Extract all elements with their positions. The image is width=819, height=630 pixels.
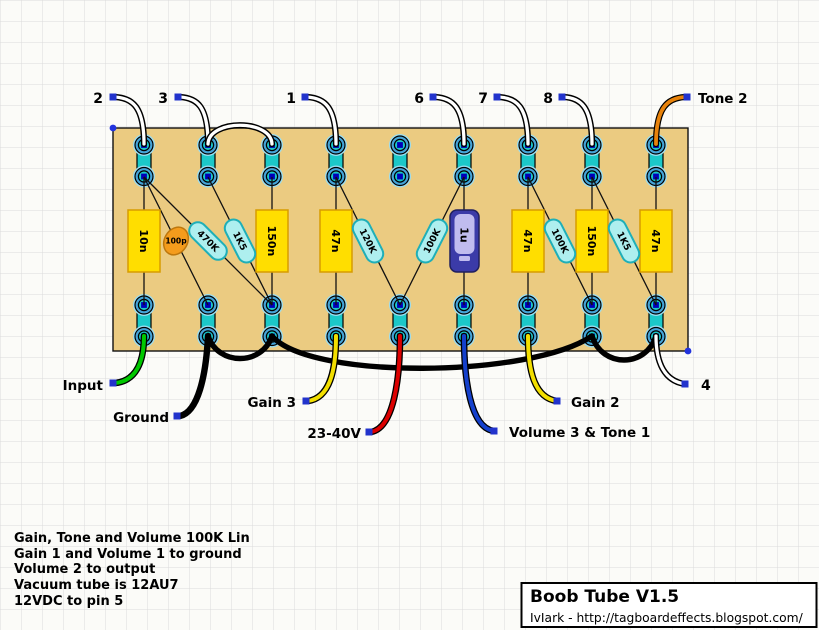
note-line-5: 12VDC to pin 5 <box>14 594 123 609</box>
capacitor-10n-label: 10n <box>137 229 150 252</box>
board-corner-handle-topleft <box>110 125 117 132</box>
note-line-4: Vacuum tube is 12AU7 <box>14 578 179 593</box>
label-pin3: 3 <box>158 91 168 107</box>
capacitor-1u-electrolytic: 1u <box>450 210 479 272</box>
label-pin7: 7 <box>478 91 488 107</box>
marker-pin1 <box>302 94 309 101</box>
capacitor-47n-c-label: 47n <box>649 229 662 252</box>
marker-input <box>110 380 117 387</box>
marker-gain3 <box>303 398 310 405</box>
capacitor-150n-b: 150n <box>576 210 608 272</box>
label-pin4: 4 <box>701 378 711 394</box>
capacitor-47n-a: 47n <box>320 210 352 272</box>
marker-vol3tone1 <box>491 428 498 435</box>
label-tone2: Tone 2 <box>698 91 748 107</box>
marker-pin4 <box>682 381 689 388</box>
marker-pin2 <box>110 94 117 101</box>
marker-tone2 <box>684 94 691 101</box>
note-line-3: Volume 2 to output <box>14 562 155 577</box>
marker-pin3 <box>175 94 182 101</box>
label-pin8: 8 <box>543 91 553 107</box>
label-pin6: 6 <box>414 91 424 107</box>
label-ground: Ground <box>113 410 169 426</box>
layout-credit: IvIark - http://tagboardeffects.blogspot… <box>530 611 804 625</box>
marker-pin7 <box>494 94 501 101</box>
marker-gain2 <box>554 398 561 405</box>
layout-canvas: 10n 150n 47n 47n 150n 47n 1u 10 <box>0 0 819 630</box>
vero-layout-screenshot: 10n 150n 47n 47n 150n 47n 1u 10 <box>0 0 819 630</box>
label-vol3tone1: Volume 3 & Tone 1 <box>509 425 650 441</box>
note-line-2: Gain 1 and Volume 1 to ground <box>14 547 242 562</box>
label-pin1: 1 <box>286 91 296 107</box>
polarity-stripe <box>459 256 470 261</box>
capacitor-150n-b-label: 150n <box>585 226 598 257</box>
marker-pin6 <box>430 94 437 101</box>
capacitor-150n-a-label: 150n <box>265 226 278 257</box>
layout-title: Boob Tube V1.5 <box>530 587 679 607</box>
label-pin2: 2 <box>93 91 103 107</box>
marker-pin8 <box>559 94 566 101</box>
capacitor-1u-label: 1u <box>458 227 471 243</box>
board-corner-handle-bottomright <box>685 348 692 355</box>
capacitor-47n-c: 47n <box>640 210 672 272</box>
label-input: Input <box>63 378 104 394</box>
marker-ground <box>174 413 181 420</box>
marker-supply <box>366 429 373 436</box>
label-gain3: Gain 3 <box>247 395 296 411</box>
capacitor-150n-a: 150n <box>256 210 288 272</box>
capacitor-10n: 10n <box>128 210 160 272</box>
note-line-1: Gain, Tone and Volume 100K Lin <box>14 531 250 546</box>
capacitor-47n-a-label: 47n <box>329 229 342 252</box>
title-block: Boob Tube V1.5 IvIark - http://tagboarde… <box>522 583 817 627</box>
label-gain2: Gain 2 <box>571 395 620 411</box>
capacitor-47n-b-label: 47n <box>521 229 534 252</box>
capacitor-47n-b: 47n <box>512 210 544 272</box>
capacitor-100p-label: 100p <box>165 237 187 246</box>
label-supply: 23-40V <box>307 426 361 442</box>
top-connector-row <box>133 134 667 188</box>
